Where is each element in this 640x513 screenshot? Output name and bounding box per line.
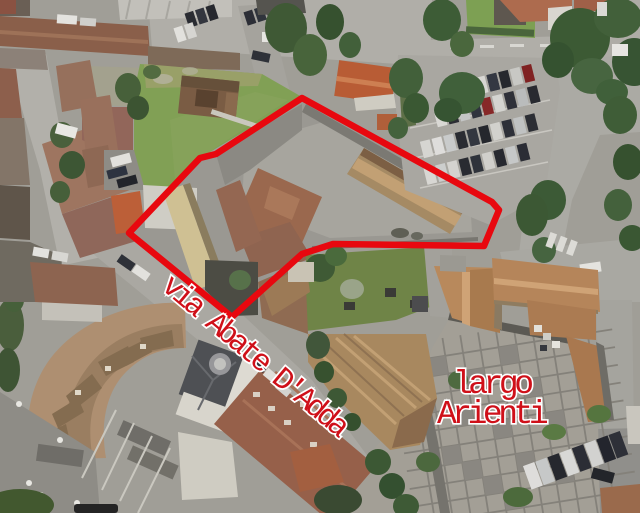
svg-text:Arienti: Arienti xyxy=(437,396,548,433)
